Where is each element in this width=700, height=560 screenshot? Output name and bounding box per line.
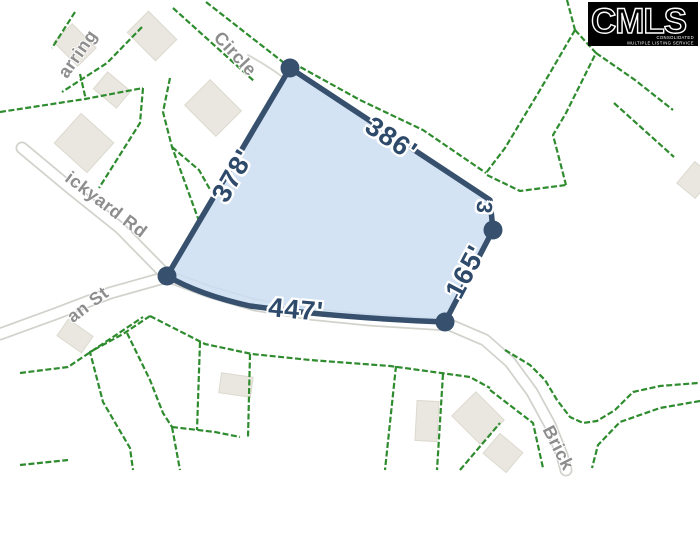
building [54, 113, 113, 172]
road-edge-arc [248, 55, 284, 78]
plat-map: 386' 378' 447' 165' 3 arring Circle icky… [0, 0, 700, 560]
lot-line [197, 342, 200, 430]
building [54, 24, 96, 66]
lot-line [172, 427, 240, 437]
lot-line [172, 147, 212, 193]
lot-line [486, 30, 575, 173]
cmls-logo-tagline-2: MULTIPLE LISTING SERVICE [627, 41, 694, 46]
building [185, 80, 242, 137]
building [57, 319, 93, 353]
vertex-dot [484, 221, 503, 240]
vertex-dot [436, 313, 455, 332]
lot-line [127, 333, 172, 427]
building [415, 400, 439, 441]
building [452, 392, 504, 444]
lot-line [173, 8, 255, 82]
vertex-dot [281, 59, 300, 78]
lot-line [487, 175, 566, 191]
vertex-dot [158, 267, 177, 286]
cmls-logo-art: CMLS CONSOLIDATED MULTIPLE LISTING SERVI… [588, 2, 698, 46]
building [483, 433, 523, 472]
lot-line [553, 30, 596, 185]
lot-line [172, 427, 180, 470]
building [93, 72, 130, 108]
map-canvas [0, 0, 700, 560]
lot-line [614, 103, 674, 157]
lot-line [567, 0, 575, 30]
lot-line [596, 53, 673, 110]
lot-line [206, 2, 288, 66]
lot-line [385, 366, 396, 470]
lot-line [90, 316, 150, 470]
lot-line [20, 460, 68, 465]
building [677, 162, 700, 199]
lot-line [592, 401, 700, 468]
cmls-logo-tagline-1: CONSOLIDATED [656, 35, 694, 40]
cmls-logo: CMLS CONSOLIDATED MULTIPLE LISTING SERVI… [588, 2, 698, 46]
